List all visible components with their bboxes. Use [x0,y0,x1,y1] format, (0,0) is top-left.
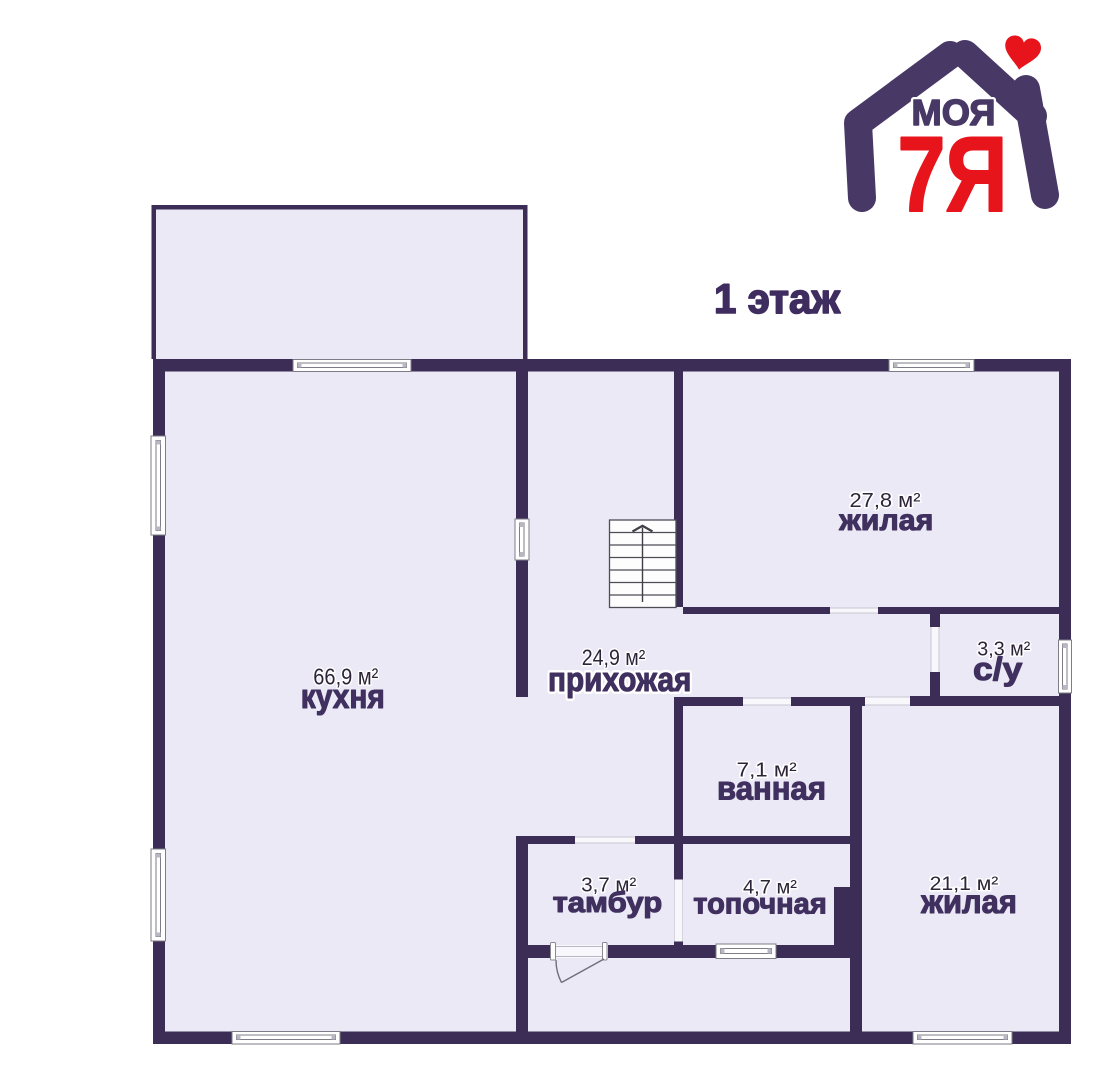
svg-text:топочная: топочная [693,888,827,921]
svg-text:прихожая: прихожая [548,661,691,699]
svg-text:кухня: кухня [301,678,385,716]
svg-text:с/у: с/у [973,651,1023,687]
svg-text:1 этаж: 1 этаж [714,275,841,322]
svg-text:тамбур: тамбур [553,887,663,919]
svg-text:жилая: жилая [920,883,1017,920]
svg-text:жилая: жилая [838,504,933,537]
svg-text:7Я: 7Я [898,114,1008,234]
svg-text:ванная: ванная [717,770,826,807]
